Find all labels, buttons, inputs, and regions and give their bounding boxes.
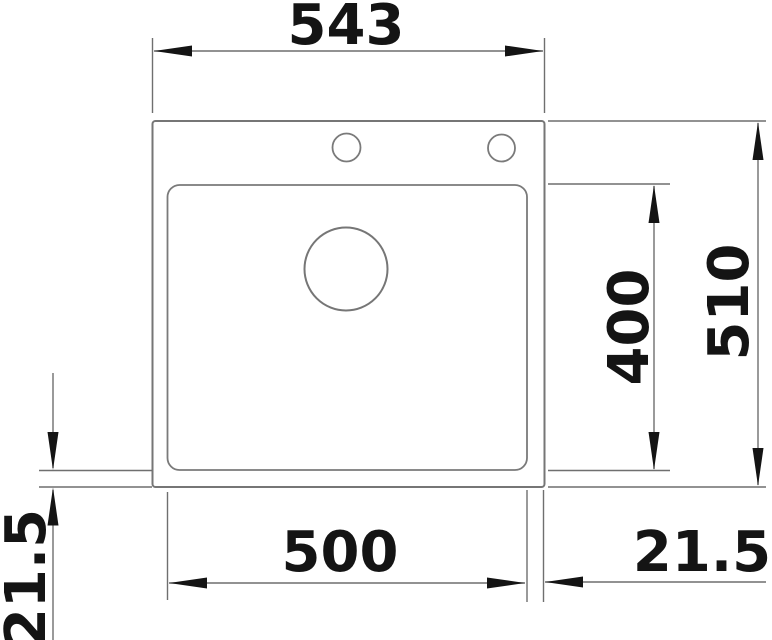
arrowhead-left-icon	[154, 46, 192, 57]
arrowhead-down-icon	[649, 432, 660, 470]
arrowhead-up-icon	[649, 185, 660, 223]
dim-label-overall-width: 543	[288, 0, 405, 58]
arrowhead-left-icon	[169, 578, 207, 589]
dim-label-rim-right: 21.5	[633, 520, 771, 585]
drain-hole	[305, 228, 388, 311]
dim-label-overall-depth: 510	[697, 244, 762, 361]
sink-outline	[153, 121, 545, 487]
dimension-rim-right: 21.5	[544, 490, 772, 602]
arrowhead-right-icon	[487, 578, 525, 589]
arrowhead-up-icon	[753, 122, 764, 160]
dimension-rim-bottom: 21.5	[0, 373, 152, 640]
arrowhead-down-icon	[48, 432, 59, 470]
faucet-hole-right	[488, 135, 515, 162]
drawing-svg: 543 510 400 500	[0, 0, 772, 640]
dim-label-basin-width: 500	[282, 520, 399, 585]
dimension-basin-depth: 400	[548, 184, 670, 471]
dimension-overall-width: 543	[153, 0, 545, 113]
dimension-basin-width: 500	[168, 490, 528, 602]
dim-label-rim-bottom: 21.5	[0, 509, 59, 640]
dim-label-basin-depth: 400	[597, 269, 662, 386]
sink-outer-edge	[153, 121, 545, 487]
sink-dimension-drawing: 543 510 400 500	[0, 0, 772, 640]
arrowhead-left-icon	[545, 577, 583, 588]
arrowhead-down-icon	[753, 448, 764, 486]
arrowhead-right-icon	[505, 46, 543, 57]
faucet-hole-center	[333, 134, 361, 162]
